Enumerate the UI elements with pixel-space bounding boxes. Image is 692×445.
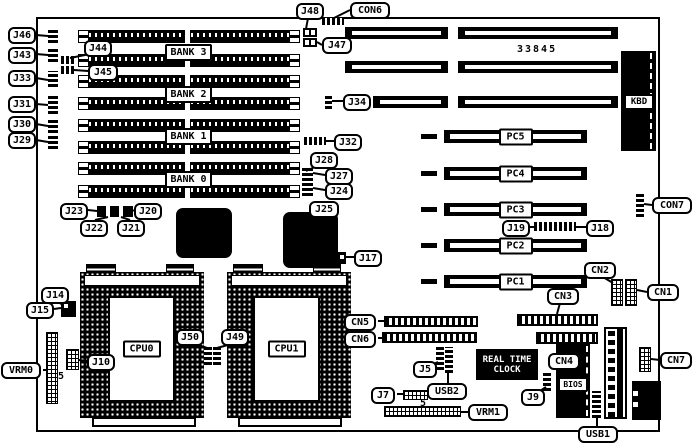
label-usb2: USB2 <box>427 383 467 400</box>
connector-j49 <box>213 347 221 365</box>
connector-j30 <box>48 118 58 133</box>
connector-j5 <box>436 347 444 370</box>
connector-j46 <box>48 28 58 43</box>
label-j25: J25 <box>309 201 339 218</box>
label-cn3: CN3 <box>547 288 579 305</box>
slot-key <box>421 134 437 139</box>
connector-cn7 <box>639 347 651 372</box>
isa-slot <box>458 96 618 108</box>
connector-j29 <box>48 134 58 149</box>
label-j49: J49 <box>221 329 249 346</box>
connector-j10 <box>66 349 79 370</box>
zif-lever <box>231 275 347 286</box>
isa-slot <box>345 61 448 73</box>
board-part-number: 33845 <box>517 44 557 55</box>
connector-j34 <box>325 95 332 109</box>
rtc-text-line2: CLOCK <box>493 365 520 375</box>
connector-j17 <box>337 252 346 264</box>
label-j33: J33 <box>8 70 36 87</box>
label-j17: J17 <box>354 250 382 267</box>
label-cn7: CN7 <box>660 352 692 369</box>
connector-j19-j18 <box>534 222 576 231</box>
connector-cn1 <box>625 279 637 306</box>
rtc-text-line1: REAL TIME <box>483 355 532 365</box>
label-j24: J24 <box>325 183 353 200</box>
bank1-label: BANK 1 <box>165 128 212 145</box>
qfp-chip <box>283 212 338 268</box>
label-cn1: CN1 <box>647 284 679 301</box>
label-j9: J9 <box>521 389 545 406</box>
label-j22: J22 <box>80 220 108 237</box>
connector-j28-j27 <box>302 167 313 181</box>
label-j23: J23 <box>60 203 88 220</box>
connector-j47 <box>303 38 317 47</box>
pc2-label: PC2 <box>499 237 533 254</box>
connector-con6 <box>322 18 344 25</box>
label-usb1: USB1 <box>578 426 618 443</box>
connector-j33 <box>48 71 58 87</box>
connector-j31 <box>48 95 58 114</box>
connector-cn3 <box>517 314 598 326</box>
slot-key <box>421 243 437 248</box>
socket-bottom-tab <box>92 417 196 427</box>
label-j20: J20 <box>134 203 162 220</box>
jumper-block-j20-j23 <box>97 206 133 217</box>
cpu1-window: CPU1 <box>253 296 320 402</box>
zif-lever <box>84 275 200 286</box>
label-cn5: CN5 <box>344 314 376 331</box>
label-j32: J32 <box>334 134 362 151</box>
slot-key <box>421 207 437 212</box>
pci-slot-pc5: PC5 <box>444 130 587 143</box>
label-j28: J28 <box>310 152 338 169</box>
motherboard-diagram: BANK 3 BANK 2 BANK 1 BANK 0 J46 J43 J33 … <box>0 0 692 445</box>
connector-cn5 <box>384 316 478 327</box>
connector-j44 <box>61 56 74 64</box>
connector-vrm0 <box>46 332 58 404</box>
label-cn2: CN2 <box>584 262 616 279</box>
cpu0-window: CPU0 <box>108 296 175 402</box>
label-j30: J30 <box>8 116 36 133</box>
label-j48: J48 <box>296 3 324 20</box>
connector-cn2 <box>611 279 623 306</box>
label-j34: J34 <box>343 94 371 111</box>
pc4-label: PC4 <box>499 165 533 182</box>
connector-j24-j25 <box>302 182 313 196</box>
simm-slot-row <box>78 30 300 43</box>
pin5-marker: 5 <box>58 371 64 382</box>
socket-bottom-tab <box>238 417 342 427</box>
connector-j45 <box>61 66 74 74</box>
label-j43: J43 <box>8 47 36 64</box>
isa-slot <box>373 96 448 108</box>
qfp-chip <box>176 208 232 258</box>
connector-j50 <box>204 347 212 365</box>
pci-slot-pc4: PC4 <box>444 167 587 180</box>
slot-key <box>421 279 437 284</box>
label-j19: J19 <box>502 220 530 237</box>
label-j10: J10 <box>87 354 115 371</box>
label-j29: J29 <box>8 132 36 149</box>
label-j18: J18 <box>586 220 614 237</box>
power-connector <box>632 381 661 420</box>
label-j44: J44 <box>84 40 112 57</box>
pc3-label: PC3 <box>499 201 533 218</box>
label-cn4: CN4 <box>548 353 580 370</box>
bank3-label: BANK 3 <box>165 44 212 61</box>
dip-socket <box>604 327 627 419</box>
real-time-clock-chip: REAL TIME CLOCK <box>476 349 538 380</box>
cpu0-label: CPU0 <box>123 341 161 358</box>
label-j50: J50 <box>176 329 204 346</box>
label-j31: J31 <box>8 96 36 113</box>
label-con7: CON7 <box>652 197 692 214</box>
isa-slot <box>345 27 448 39</box>
bank2-label: BANK 2 <box>165 86 212 103</box>
label-j15: J15 <box>26 302 54 319</box>
label-cn6: CN6 <box>344 331 376 348</box>
pci-slot-pc1: PC1 <box>444 275 587 288</box>
pci-slot-pc2: PC2 <box>444 239 587 252</box>
connector-j9 <box>543 371 551 391</box>
connector-con7 <box>636 193 644 217</box>
label-j47: J47 <box>322 37 352 54</box>
label-con6: CON6 <box>350 2 390 19</box>
label-vrm0: VRM0 <box>1 362 41 379</box>
pc1-label: PC1 <box>499 273 533 290</box>
label-j7: J7 <box>371 387 395 404</box>
slot-key <box>421 171 437 176</box>
connector-j43 <box>48 47 58 62</box>
label-j21: J21 <box>117 220 145 237</box>
pc5-label: PC5 <box>499 128 533 145</box>
connector-usb2 <box>445 347 453 373</box>
connector-usb1 <box>592 391 601 418</box>
bios-label: BIOS <box>558 377 588 392</box>
label-j46: J46 <box>8 27 36 44</box>
kbd-label: KBD <box>624 94 654 110</box>
label-j5: J5 <box>413 361 437 378</box>
connector-cn6 <box>382 332 477 343</box>
cpu1-label: CPU1 <box>268 341 306 358</box>
label-vrm1: VRM1 <box>468 404 508 421</box>
isa-slot <box>458 27 618 39</box>
connector-j32 <box>304 137 326 145</box>
isa-slot <box>458 61 618 73</box>
pin5-marker: 5 <box>420 398 426 409</box>
connector-cn4 <box>536 332 598 344</box>
label-j45: J45 <box>88 64 118 81</box>
pci-slot-pc3: PC3 <box>444 203 587 216</box>
bank0-label: BANK 0 <box>165 171 212 188</box>
connector-j48 <box>303 28 317 37</box>
